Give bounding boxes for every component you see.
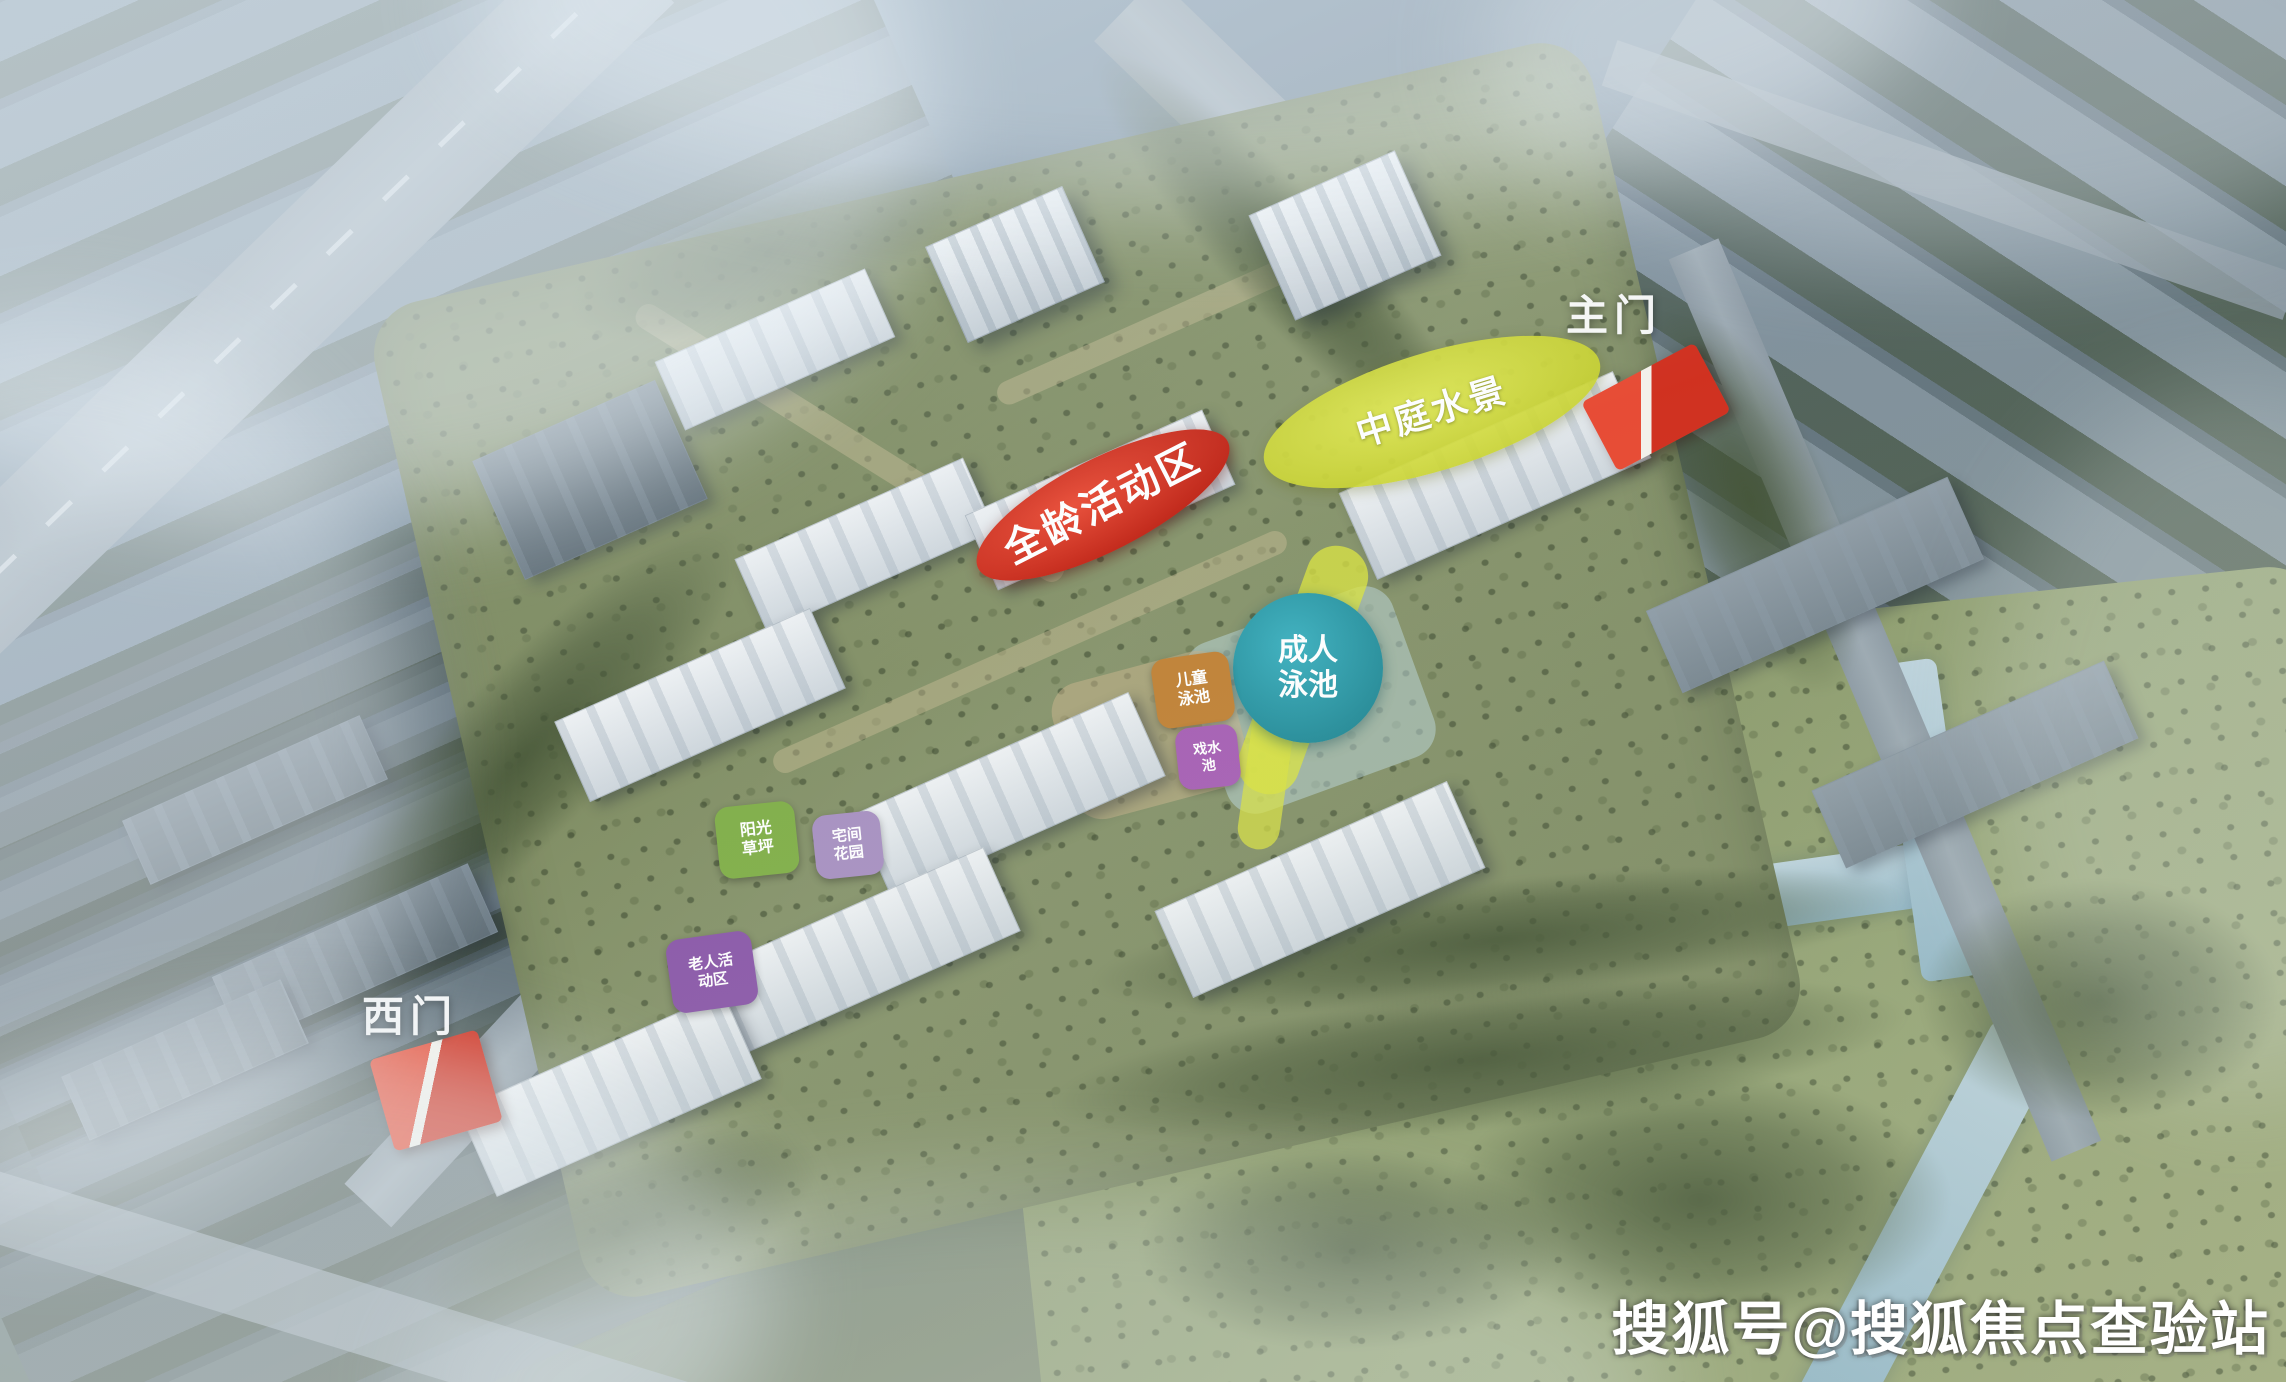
haze-veil: [0, 0, 2286, 1382]
watermark-text: 搜狐号@搜狐焦点查验站: [1611, 1282, 2270, 1366]
aerial-site-plan: 全龄活动区 中庭水景 成人泳池 儿童泳池 戏水池 阳光草坪 宅间花园 老人活动区…: [0, 0, 2286, 1382]
